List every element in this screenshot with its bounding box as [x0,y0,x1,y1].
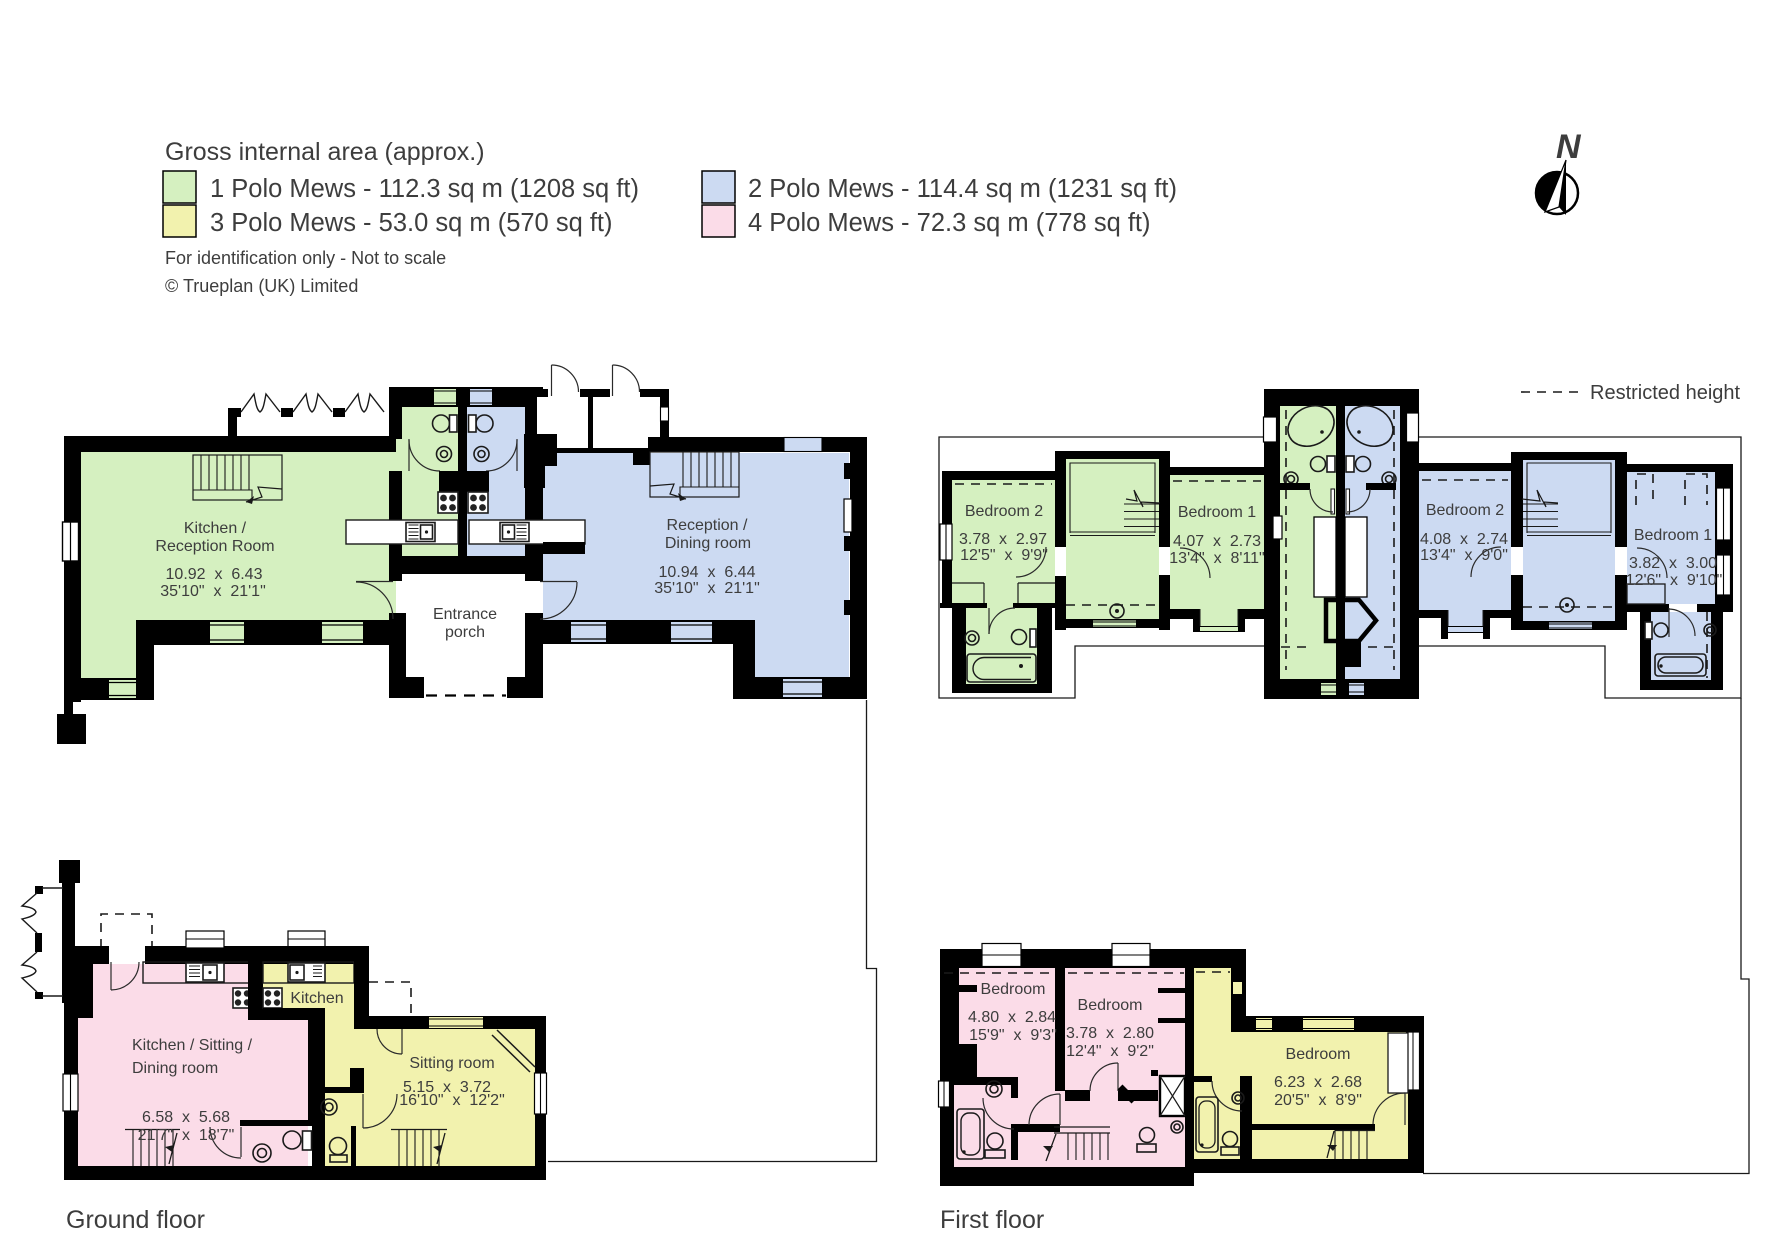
svg-text:Bedroom: Bedroom [1286,1046,1351,1063]
svg-text:4.08 x 2.74: 4.08 x 2.74 [1420,531,1508,548]
svg-text:2 Polo Mews - 114.4 sq m (1231: 2 Polo Mews - 114.4 sq m (1231 sq ft) [748,175,1177,203]
svg-text:Ground floor: Ground floor [66,1206,205,1234]
svg-text:10.94 x 6.44: 10.94 x 6.44 [659,564,756,581]
svg-text:6.23 x 2.68: 6.23 x 2.68 [1274,1074,1362,1091]
svg-text:Bedroom 1: Bedroom 1 [1178,504,1256,521]
svg-text:16'10" x 12'2": 16'10" x 12'2" [399,1092,505,1109]
svg-text:4.80 x 2.84: 4.80 x 2.84 [968,1009,1056,1026]
svg-text:Dining room: Dining room [132,1060,218,1077]
svg-text:3.78 x 2.97: 3.78 x 2.97 [959,531,1047,548]
svg-text:35'10" x 21'1": 35'10" x 21'1" [654,580,760,597]
svg-text:13'4" x 9'0": 13'4" x 9'0" [1420,547,1508,564]
svg-text:20'5" x 8'9": 20'5" x 8'9" [1274,1092,1362,1109]
svg-text:Bedroom 2: Bedroom 2 [965,503,1043,520]
svg-text:Bedroom: Bedroom [981,981,1046,998]
svg-text:4 Polo Mews - 72.3 sq m (778 s: 4 Polo Mews - 72.3 sq m (778 sq ft) [748,209,1151,237]
svg-text:21'7" x 18'7": 21'7" x 18'7" [138,1127,235,1144]
svg-text:Sitting room: Sitting room [409,1055,494,1072]
svg-text:Gross internal area (approx.): Gross internal area (approx.) [165,138,485,166]
svg-text:15'9" x 9'3": 15'9" x 9'3" [969,1027,1057,1044]
svg-text:Kitchen / Sitting /: Kitchen / Sitting / [132,1037,253,1054]
svg-text:Reception Room: Reception Room [155,538,274,555]
svg-text:12'6" x 9'10": 12'6" x 9'10" [1626,572,1723,589]
svg-text:Kitchen: Kitchen [290,990,343,1007]
svg-text:3.82 x 3.00: 3.82 x 3.00 [1629,555,1717,572]
svg-text:12'5" x 9'9": 12'5" x 9'9" [960,547,1048,564]
svg-text:For identification only - Not: For identification only - Not to scale [165,248,446,268]
svg-text:Entrance: Entrance [433,606,497,623]
svg-text:6.58 x 5.68: 6.58 x 5.68 [142,1109,230,1126]
svg-text:Bedroom 1: Bedroom 1 [1634,527,1712,544]
svg-text:Reception /: Reception / [667,517,748,534]
svg-text:10.92 x 6.43: 10.92 x 6.43 [166,566,263,583]
svg-text:1 Polo Mews - 112.3 sq m (1208: 1 Polo Mews - 112.3 sq m (1208 sq ft) [210,175,639,203]
svg-text:4.07 x 2.73: 4.07 x 2.73 [1173,533,1261,550]
svg-text:porch: porch [445,624,485,641]
svg-text:Kitchen /: Kitchen / [184,520,247,537]
svg-text:First floor: First floor [940,1206,1044,1234]
svg-text:35'10" x 21'1": 35'10" x 21'1" [160,583,266,600]
svg-text:Bedroom: Bedroom [1078,997,1143,1014]
svg-text:N: N [1556,128,1582,166]
svg-text:3.78 x 2.80: 3.78 x 2.80 [1066,1025,1154,1042]
svg-text:13'4" x 8'11": 13'4" x 8'11" [1169,550,1264,567]
svg-text:12'4" x 9'2": 12'4" x 9'2" [1066,1043,1154,1060]
svg-text:Restricted height: Restricted height [1590,382,1741,404]
svg-text:© Trueplan (UK) Limited: © Trueplan (UK) Limited [165,276,358,296]
svg-text:Dining room: Dining room [665,535,751,552]
svg-text:3 Polo Mews - 53.0 sq m (570 s: 3 Polo Mews - 53.0 sq m (570 sq ft) [210,209,613,237]
svg-text:Bedroom 2: Bedroom 2 [1426,502,1504,519]
